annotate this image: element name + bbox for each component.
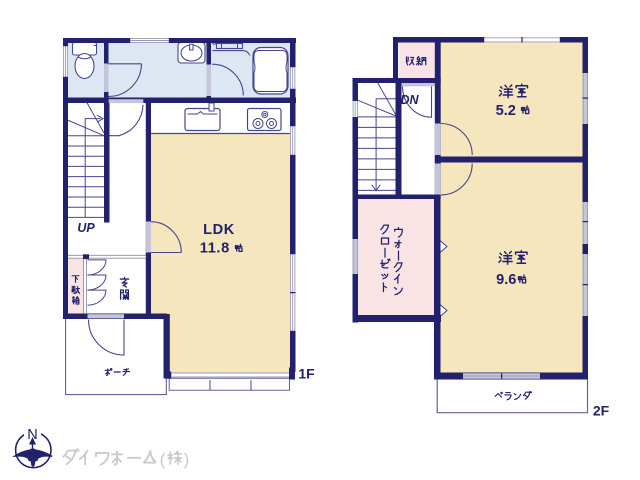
svg-text:UP: UP	[77, 221, 95, 235]
svg-text:5.2: 5.2	[496, 103, 516, 119]
svg-text:): )	[184, 450, 190, 469]
svg-text:9.6: 9.6	[496, 272, 516, 288]
svg-text:11.8: 11.8	[200, 240, 230, 256]
svg-text:DN: DN	[400, 93, 419, 107]
svg-text:LDK: LDK	[203, 222, 235, 238]
svg-text:2F: 2F	[593, 403, 610, 419]
svg-text:1F: 1F	[298, 366, 315, 382]
svg-text:(: (	[160, 450, 166, 469]
